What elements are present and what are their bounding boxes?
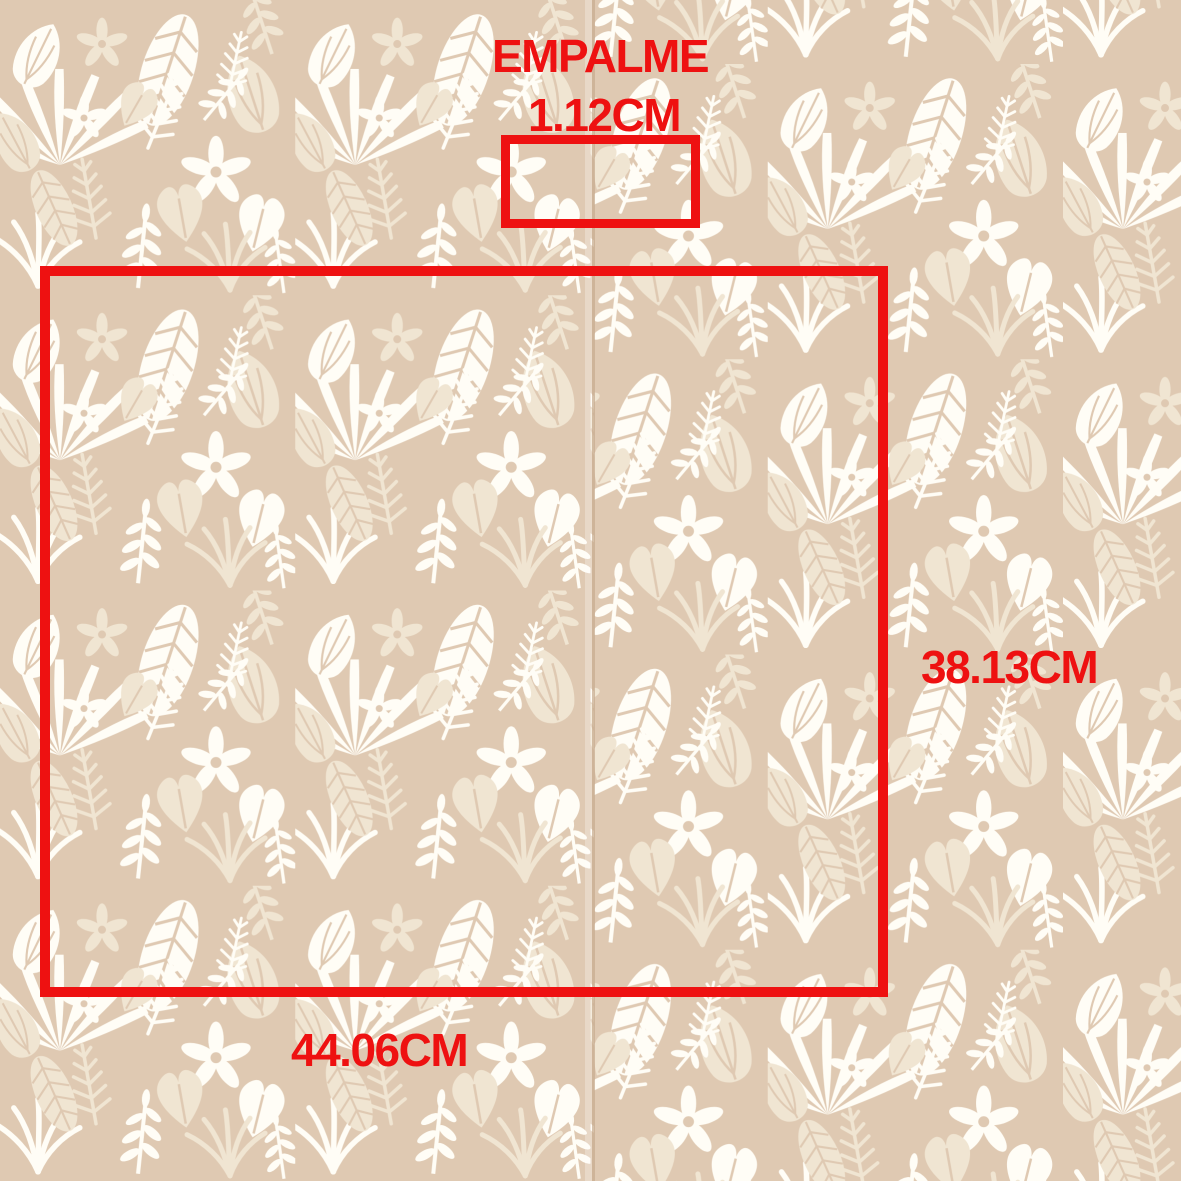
seam-size-label: 1.12CM <box>528 92 680 138</box>
repeat-width-label: 44.06CM <box>291 1027 467 1073</box>
pattern-repeat-rectangle <box>40 266 888 997</box>
seam-rectangle <box>501 135 700 228</box>
seam-label: EMPALME <box>492 33 708 79</box>
repeat-height-label: 38.13CM <box>921 644 1097 690</box>
wallpaper-measurement-image: EMPALME 1.12CM 38.13CM 44.06CM <box>0 0 1181 1181</box>
